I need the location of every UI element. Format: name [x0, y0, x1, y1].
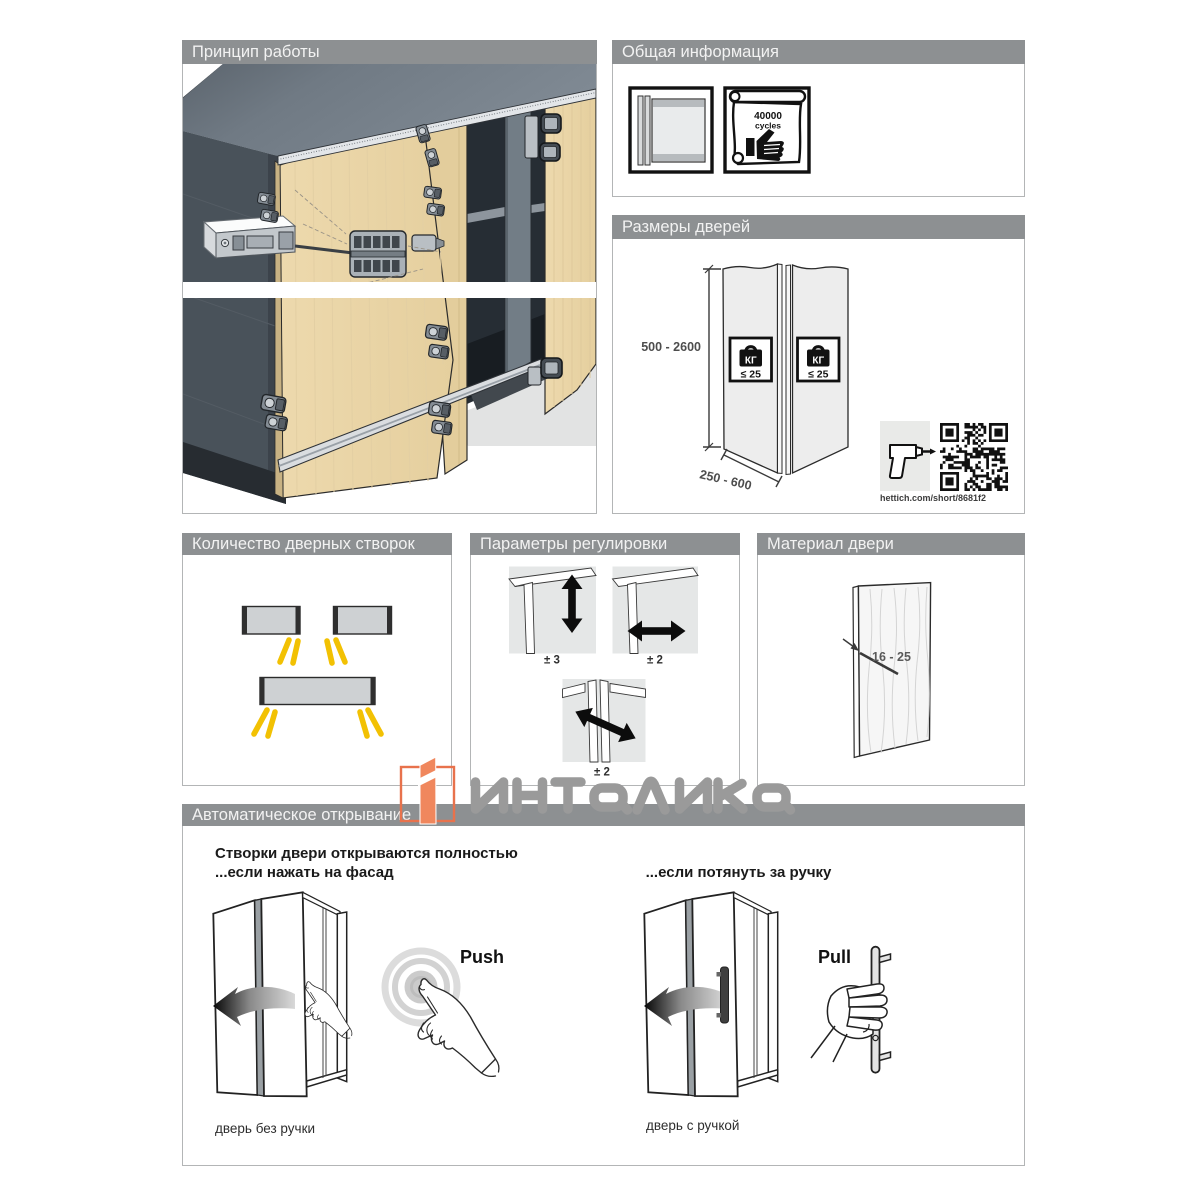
svg-text:250 - 600: 250 - 600: [698, 467, 753, 493]
svg-text:Pull: Pull: [818, 947, 851, 967]
svg-text:Push: Push: [460, 947, 504, 967]
svg-text:± 2: ± 2: [647, 655, 663, 667]
svg-text:...если нажать на фасад: ...если нажать на фасад: [215, 864, 394, 881]
svg-text:≤ 25: ≤ 25: [741, 369, 762, 381]
svg-text:500 - 2600: 500 - 2600: [641, 340, 701, 354]
svg-text:≤ 25: ≤ 25: [808, 369, 829, 381]
svg-text:Створки двери открываются полн: Створки двери открываются полностью: [215, 845, 518, 862]
svg-text:КГ: КГ: [812, 356, 824, 367]
svg-text:hettich.com/short/8681f2: hettich.com/short/8681f2: [880, 493, 986, 503]
svg-text:КГ: КГ: [745, 356, 757, 367]
svg-text:дверь с ручкой: дверь с ручкой: [646, 1118, 739, 1133]
svg-text:...если потянуть за ручку: ...если потянуть за ручку: [646, 864, 832, 881]
svg-text:cycles: cycles: [755, 121, 781, 131]
svg-text:дверь без ручки: дверь без ручки: [215, 1121, 315, 1136]
svg-text:± 3: ± 3: [544, 655, 560, 667]
svg-text:16 - 25: 16 - 25: [872, 650, 911, 664]
